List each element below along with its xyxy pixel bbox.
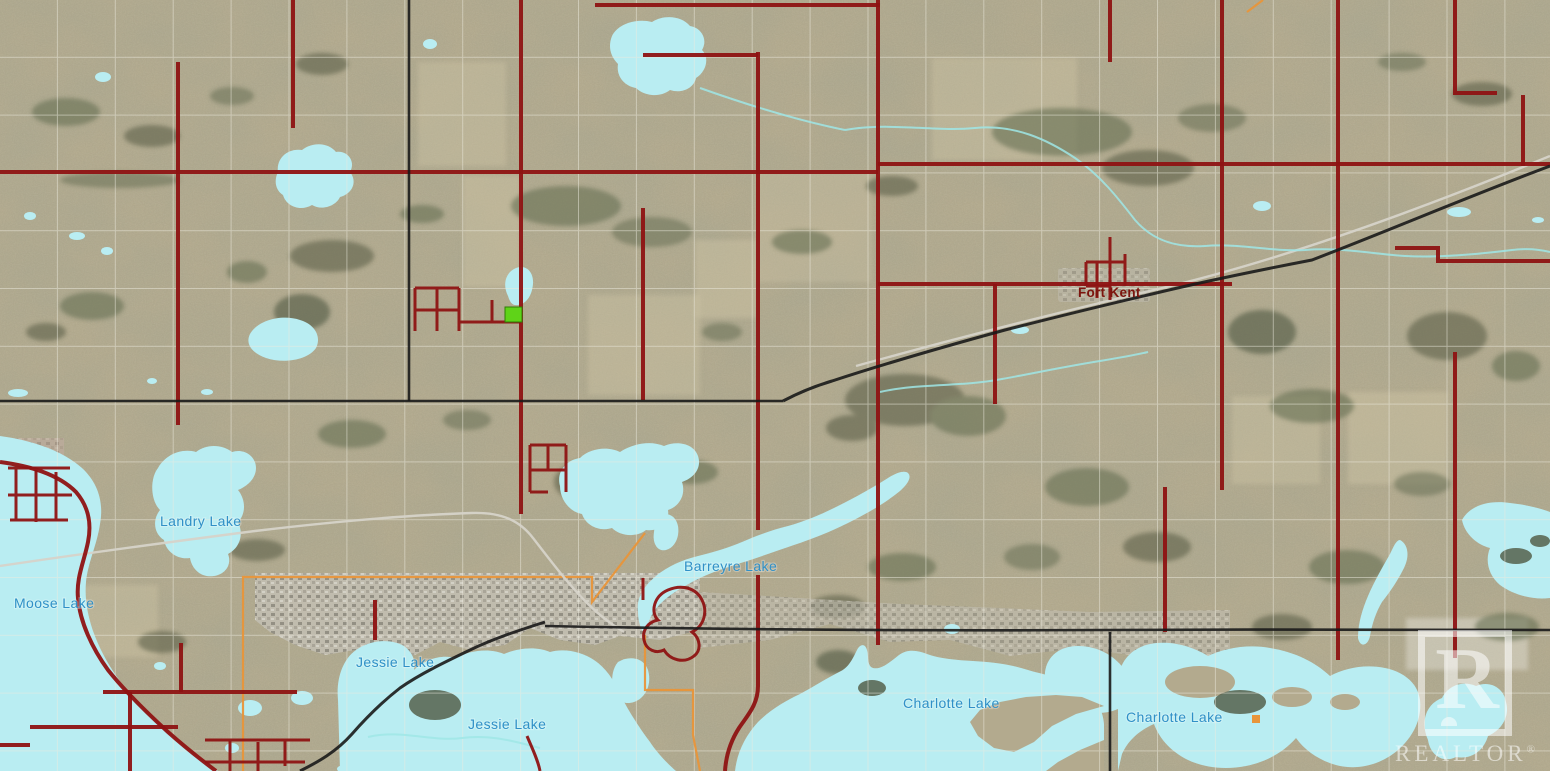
moose-lake-label: Moose Lake — [14, 595, 94, 611]
highlighted-parcel[interactable] — [505, 307, 522, 322]
realtor-logo-letter: R — [1427, 637, 1507, 723]
fort-kent-label: Fort Kent — [1078, 285, 1141, 300]
satellite-map[interactable]: Moose Lake Landry Lake Barreyre Lake Jes… — [0, 0, 1550, 771]
realtor-watermark: R REALTOR® — [1390, 630, 1540, 767]
landry-lake-label: Landry Lake — [160, 513, 241, 529]
realtor-brand-text: REALTOR — [1395, 741, 1527, 766]
realtor-logo-icon: R — [1418, 630, 1512, 736]
charlotte-lake-label-east: Charlotte Lake — [1126, 709, 1223, 725]
registered-trademark-symbol: ® — [1527, 743, 1535, 755]
section-grid — [0, 0, 1550, 771]
jessie-lake-label-main: Jessie Lake — [468, 716, 546, 732]
realtor-wordmark: REALTOR® — [1390, 741, 1540, 767]
jessie-lake-label-west: Jessie Lake — [356, 654, 434, 670]
map-viewport[interactable]: Moose Lake Landry Lake Barreyre Lake Jes… — [0, 0, 1550, 771]
barreyre-lake-label: Barreyre Lake — [684, 558, 777, 574]
charlotte-lake-label-west: Charlotte Lake — [903, 695, 1000, 711]
realtor-logo-dome-icon — [1441, 717, 1457, 726]
